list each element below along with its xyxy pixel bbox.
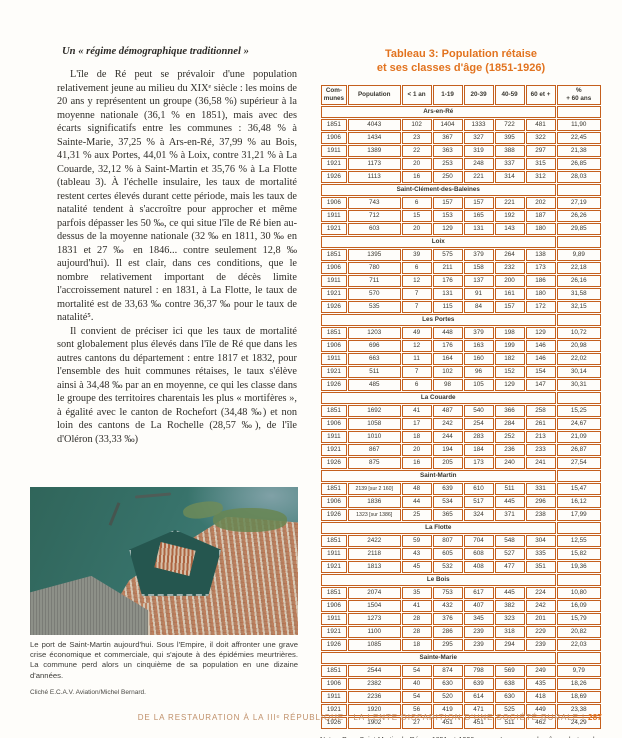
table-row: 191110101824428325221321,09 bbox=[321, 431, 601, 443]
population-table-header-row: Com- munesPopulation< 1 an1-1920-3940-59… bbox=[321, 85, 601, 105]
value-cell: 129 bbox=[433, 223, 463, 235]
year-cell: 1921 bbox=[321, 444, 347, 456]
value-cell: 753 bbox=[433, 587, 463, 599]
value-cell: 173 bbox=[526, 262, 556, 274]
value-cell: 221 bbox=[495, 197, 525, 209]
value-cell: 16 bbox=[402, 457, 432, 469]
table-row: 19218672019418423623326,87 bbox=[321, 444, 601, 456]
photo-breakwater bbox=[134, 493, 170, 499]
value-cell: 22,02 bbox=[557, 353, 602, 365]
value-cell: 363 bbox=[433, 145, 463, 157]
year-cell: 1921 bbox=[321, 158, 347, 170]
value-cell: 867 bbox=[348, 444, 401, 456]
value-cell: 315 bbox=[526, 158, 556, 170]
value-cell: 16,12 bbox=[557, 496, 602, 508]
value-cell: 176 bbox=[433, 275, 463, 287]
table-row: 18512139 [sur 2 160]4863961051133115,47 bbox=[321, 483, 601, 495]
table-row: 192611131625022131431228,03 bbox=[321, 171, 601, 183]
year-cell: 1926 bbox=[321, 171, 347, 183]
table-row: 191112732837634532320115,79 bbox=[321, 613, 601, 625]
value-cell: 2422 bbox=[348, 535, 401, 547]
value-cell: 28 bbox=[402, 626, 432, 638]
value-cell: 54 bbox=[402, 691, 432, 703]
value-cell: 41 bbox=[402, 405, 432, 417]
value-cell: 575 bbox=[433, 249, 463, 261]
table-row: 190610581724225428426124,67 bbox=[321, 418, 601, 430]
value-cell: 603 bbox=[348, 223, 401, 235]
left-text-column: Un « régime démographique traditionnel »… bbox=[57, 46, 297, 446]
photo-credit: Cliché E.C.A.V. Aviation/Michel Bernard. bbox=[30, 689, 298, 696]
value-cell: 4043 bbox=[348, 119, 401, 131]
value-cell: 202 bbox=[526, 197, 556, 209]
table-row: 1906780621115823217322,18 bbox=[321, 262, 601, 274]
commune-name: Saint-Clément-des-Baleines bbox=[321, 184, 556, 196]
empty-cell bbox=[557, 184, 602, 196]
value-cell: 1273 bbox=[348, 613, 401, 625]
year-cell: 1906 bbox=[321, 418, 347, 430]
table-row: 190618364453451744529616,12 bbox=[321, 496, 601, 508]
year-cell: 1911 bbox=[321, 275, 347, 287]
value-cell: 143 bbox=[495, 223, 525, 235]
value-cell: 304 bbox=[526, 535, 556, 547]
empty-cell bbox=[557, 236, 602, 248]
table-row: 192151171029615215430,14 bbox=[321, 366, 601, 378]
value-cell: 229 bbox=[526, 626, 556, 638]
value-cell: 638 bbox=[495, 678, 525, 690]
value-cell: 6 bbox=[402, 197, 432, 209]
value-cell: 129 bbox=[526, 327, 556, 339]
year-cell: 1921 bbox=[321, 561, 347, 573]
value-cell: 345 bbox=[464, 613, 494, 625]
value-cell: 249 bbox=[526, 665, 556, 677]
value-cell: 337 bbox=[495, 158, 525, 170]
value-cell: 798 bbox=[464, 665, 494, 677]
value-cell: 534 bbox=[433, 496, 463, 508]
value-cell: 137 bbox=[464, 275, 494, 287]
value-cell: 517 bbox=[464, 496, 494, 508]
value-cell: 147 bbox=[526, 379, 556, 391]
table-title-line1: Tableau 3: Population rétaise bbox=[385, 48, 537, 60]
value-cell: 131 bbox=[464, 223, 494, 235]
value-cell: 17,99 bbox=[557, 509, 602, 521]
value-cell: 221 bbox=[464, 171, 494, 183]
value-cell: 18 bbox=[402, 639, 432, 651]
value-cell: 2382 bbox=[348, 678, 401, 690]
value-cell: 28,03 bbox=[557, 171, 602, 183]
value-cell: 1333 bbox=[464, 119, 494, 131]
table-row: 191113892236331938829721,38 bbox=[321, 145, 601, 157]
body-paragraph-1: L'île de Ré peut se prévaloir d'une popu… bbox=[57, 68, 297, 325]
value-cell: 163 bbox=[464, 340, 494, 352]
value-cell: 639 bbox=[464, 678, 494, 690]
commune-section-row: Saint-Clément-des-Baleines bbox=[321, 184, 601, 196]
table-row: 185112034944837919812910,72 bbox=[321, 327, 601, 339]
value-cell: 91 bbox=[464, 288, 494, 300]
value-cell: 224 bbox=[526, 587, 556, 599]
value-cell: 296 bbox=[526, 496, 556, 508]
value-cell: 96 bbox=[464, 366, 494, 378]
page-footer: DE LA RESTAURATION À LA IIIᵉ RÉPUBLIQUE … bbox=[0, 713, 602, 722]
value-cell: 20 bbox=[402, 158, 432, 170]
value-cell: 511 bbox=[495, 483, 525, 495]
value-cell: 7 bbox=[402, 366, 432, 378]
value-cell: 780 bbox=[348, 262, 401, 274]
value-cell: 48 bbox=[402, 483, 432, 495]
value-cell: 39 bbox=[402, 249, 432, 261]
table-row: 192111002828623931822920,82 bbox=[321, 626, 601, 638]
value-cell: 261 bbox=[526, 418, 556, 430]
value-cell: 164 bbox=[433, 353, 463, 365]
value-cell: 15,47 bbox=[557, 483, 602, 495]
value-cell: 160 bbox=[464, 353, 494, 365]
table-row: 192118134553240847735119,36 bbox=[321, 561, 601, 573]
value-cell: 704 bbox=[464, 535, 494, 547]
year-cell: 1911 bbox=[321, 210, 347, 222]
value-cell: 481 bbox=[526, 119, 556, 131]
value-cell: 485 bbox=[348, 379, 401, 391]
value-cell: 630 bbox=[433, 678, 463, 690]
value-cell: 376 bbox=[433, 613, 463, 625]
value-cell: 59 bbox=[402, 535, 432, 547]
value-cell: 232 bbox=[495, 262, 525, 274]
value-cell: 570 bbox=[348, 288, 401, 300]
empty-cell bbox=[557, 392, 602, 404]
value-cell: 294 bbox=[495, 639, 525, 651]
section-heading: Un « régime démographique traditionnel » bbox=[62, 46, 297, 57]
value-cell: 152 bbox=[495, 366, 525, 378]
value-cell: 35 bbox=[402, 587, 432, 599]
year-cell: 1906 bbox=[321, 132, 347, 144]
table-row: 19117121515316519218726,26 bbox=[321, 210, 601, 222]
value-cell: 32,15 bbox=[557, 301, 602, 313]
value-cell: 569 bbox=[495, 665, 525, 677]
year-cell: 1851 bbox=[321, 665, 347, 677]
value-cell: 105 bbox=[464, 379, 494, 391]
commune-section-row: Ars-en-Ré bbox=[321, 106, 601, 118]
value-cell: 1836 bbox=[348, 496, 401, 508]
value-cell: 1323 [sur 1386] bbox=[348, 509, 401, 521]
photo-jetty bbox=[109, 502, 121, 525]
value-cell: 548 bbox=[495, 535, 525, 547]
value-cell: 382 bbox=[495, 600, 525, 612]
value-cell: 366 bbox=[495, 405, 525, 417]
value-cell: 205 bbox=[433, 457, 463, 469]
value-cell: 407 bbox=[464, 600, 494, 612]
value-cell: 43 bbox=[402, 548, 432, 560]
value-cell: 131 bbox=[433, 288, 463, 300]
value-cell: 477 bbox=[495, 561, 525, 573]
value-cell: 331 bbox=[526, 483, 556, 495]
value-cell: 154 bbox=[526, 366, 556, 378]
commune-section-row: La Flotte bbox=[321, 522, 601, 534]
value-cell: 27,54 bbox=[557, 457, 602, 469]
value-cell: 1085 bbox=[348, 639, 401, 651]
table-title: Tableau 3: Population rétaise et ses cla… bbox=[320, 48, 602, 75]
value-cell: 236 bbox=[495, 444, 525, 456]
value-cell: 418 bbox=[526, 691, 556, 703]
value-cell: 617 bbox=[464, 587, 494, 599]
year-cell: 1851 bbox=[321, 119, 347, 131]
empty-cell bbox=[557, 522, 602, 534]
value-cell: 28 bbox=[402, 613, 432, 625]
value-cell: 318 bbox=[495, 626, 525, 638]
table-row: 185140431021404133372248111,90 bbox=[321, 119, 601, 131]
footer-text: DE LA RESTAURATION À LA IIIᵉ RÉPUBLIQUE … bbox=[138, 713, 585, 722]
table-row: 190614342336732739532222,45 bbox=[321, 132, 601, 144]
table-row: 19066961217616319914620,98 bbox=[321, 340, 601, 352]
value-cell: 9,89 bbox=[557, 249, 602, 261]
right-table-column: Tableau 3: Population rétaise et ses cla… bbox=[320, 48, 602, 738]
value-cell: 165 bbox=[464, 210, 494, 222]
year-cell: 1911 bbox=[321, 691, 347, 703]
year-cell: 1906 bbox=[321, 197, 347, 209]
value-cell: 487 bbox=[433, 405, 463, 417]
year-cell: 1926 bbox=[321, 379, 347, 391]
value-cell: 198 bbox=[495, 327, 525, 339]
value-cell: 2236 bbox=[348, 691, 401, 703]
value-cell: 98 bbox=[433, 379, 463, 391]
value-cell: 12,55 bbox=[557, 535, 602, 547]
value-cell: 20 bbox=[402, 444, 432, 456]
value-cell: 312 bbox=[526, 171, 556, 183]
year-cell: 1911 bbox=[321, 548, 347, 560]
value-cell: 254 bbox=[464, 418, 494, 430]
year-cell: 1906 bbox=[321, 678, 347, 690]
value-cell: 29,85 bbox=[557, 223, 602, 235]
book-page: Un « régime démographique traditionnel »… bbox=[0, 0, 622, 738]
value-cell: 26,16 bbox=[557, 275, 602, 287]
value-cell: 258 bbox=[526, 405, 556, 417]
value-cell: 432 bbox=[433, 600, 463, 612]
value-cell: 16,09 bbox=[557, 600, 602, 612]
value-cell: 186 bbox=[526, 275, 556, 287]
page-number: 287 bbox=[588, 713, 602, 722]
value-cell: 161 bbox=[495, 288, 525, 300]
year-cell: 1851 bbox=[321, 587, 347, 599]
value-cell: 408 bbox=[464, 561, 494, 573]
column-header: Population bbox=[348, 85, 401, 105]
value-cell: 319 bbox=[464, 145, 494, 157]
table-row: 19117111217613720018626,16 bbox=[321, 275, 601, 287]
value-cell: 30,31 bbox=[557, 379, 602, 391]
value-cell: 213 bbox=[526, 431, 556, 443]
value-cell: 1389 bbox=[348, 145, 401, 157]
year-cell: 1921 bbox=[321, 223, 347, 235]
value-cell: 608 bbox=[464, 548, 494, 560]
value-cell: 1395 bbox=[348, 249, 401, 261]
value-cell: 743 bbox=[348, 197, 401, 209]
column-header: 60 et + bbox=[526, 85, 556, 105]
value-cell: 7 bbox=[402, 288, 432, 300]
value-cell: 448 bbox=[433, 327, 463, 339]
value-cell: 146 bbox=[526, 340, 556, 352]
value-cell: 20,98 bbox=[557, 340, 602, 352]
value-cell: 283 bbox=[464, 431, 494, 443]
column-header: 1-19 bbox=[433, 85, 463, 105]
value-cell: 172 bbox=[526, 301, 556, 313]
table-row: 190623824063063963843518,26 bbox=[321, 678, 601, 690]
value-cell: 15,25 bbox=[557, 405, 602, 417]
empty-cell bbox=[557, 652, 602, 664]
value-cell: 253 bbox=[433, 158, 463, 170]
value-cell: 875 bbox=[348, 457, 401, 469]
value-cell: 192 bbox=[495, 210, 525, 222]
value-cell: 54 bbox=[402, 665, 432, 677]
value-cell: 2139 [sur 2 160] bbox=[348, 483, 401, 495]
year-cell: 1851 bbox=[321, 249, 347, 261]
empty-cell bbox=[557, 314, 602, 326]
value-cell: 388 bbox=[495, 145, 525, 157]
value-cell: 605 bbox=[433, 548, 463, 560]
value-cell: 239 bbox=[464, 626, 494, 638]
value-cell: 129 bbox=[495, 379, 525, 391]
value-cell: 1100 bbox=[348, 626, 401, 638]
year-cell: 1911 bbox=[321, 145, 347, 157]
table-row: 18512544548747985692499,79 bbox=[321, 665, 601, 677]
value-cell: 23 bbox=[402, 132, 432, 144]
value-cell: 250 bbox=[433, 171, 463, 183]
table-row: 185120743575361744522410,80 bbox=[321, 587, 601, 599]
column-header: 40-59 bbox=[495, 85, 525, 105]
value-cell: 722 bbox=[495, 119, 525, 131]
empty-cell bbox=[557, 106, 602, 118]
value-cell: 630 bbox=[495, 691, 525, 703]
value-cell: 15,82 bbox=[557, 548, 602, 560]
value-cell: 1404 bbox=[433, 119, 463, 131]
commune-name: Sainte-Marie bbox=[321, 652, 556, 664]
year-cell: 1851 bbox=[321, 535, 347, 547]
value-cell: 242 bbox=[526, 600, 556, 612]
value-cell: 9,79 bbox=[557, 665, 602, 677]
value-cell: 711 bbox=[348, 275, 401, 287]
value-cell: 1010 bbox=[348, 431, 401, 443]
empty-cell bbox=[557, 470, 602, 482]
value-cell: 30,14 bbox=[557, 366, 602, 378]
value-cell: 295 bbox=[433, 639, 463, 651]
photo-caption: Le port de Saint-Martin aujourd'hui. Sou… bbox=[30, 640, 298, 681]
value-cell: 173 bbox=[464, 457, 494, 469]
column-header: 20-39 bbox=[464, 85, 494, 105]
value-cell: 44 bbox=[402, 496, 432, 508]
value-cell: 41 bbox=[402, 600, 432, 612]
value-cell: 158 bbox=[464, 262, 494, 274]
table-row: 190615044143240738224216,09 bbox=[321, 600, 601, 612]
value-cell: 712 bbox=[348, 210, 401, 222]
value-cell: 157 bbox=[433, 197, 463, 209]
year-cell: 1851 bbox=[321, 327, 347, 339]
year-cell: 1906 bbox=[321, 600, 347, 612]
value-cell: 323 bbox=[495, 613, 525, 625]
value-cell: 15 bbox=[402, 210, 432, 222]
value-cell: 49 bbox=[402, 327, 432, 339]
value-cell: 20,82 bbox=[557, 626, 602, 638]
value-cell: 511 bbox=[348, 366, 401, 378]
value-cell: 286 bbox=[433, 626, 463, 638]
value-cell: 244 bbox=[433, 431, 463, 443]
value-cell: 327 bbox=[464, 132, 494, 144]
table-row: 185116924148754036625815,25 bbox=[321, 405, 601, 417]
value-cell: 211 bbox=[433, 262, 463, 274]
table-row: 19116631116416018214622,02 bbox=[321, 353, 601, 365]
commune-name: Les Portes bbox=[321, 314, 556, 326]
value-cell: 153 bbox=[433, 210, 463, 222]
value-cell: 696 bbox=[348, 340, 401, 352]
value-cell: 25 bbox=[402, 509, 432, 521]
value-cell: 252 bbox=[495, 431, 525, 443]
commune-name: La Couarde bbox=[321, 392, 556, 404]
table-row: 18511395395753792641389,89 bbox=[321, 249, 601, 261]
value-cell: 180 bbox=[526, 223, 556, 235]
value-cell: 12 bbox=[402, 340, 432, 352]
population-table-body: Ars-en-Ré185140431021404133372248111,901… bbox=[321, 106, 601, 729]
year-cell: 1911 bbox=[321, 353, 347, 365]
value-cell: 115 bbox=[433, 301, 463, 313]
year-cell: 1906 bbox=[321, 262, 347, 274]
value-cell: 15,79 bbox=[557, 613, 602, 625]
value-cell: 807 bbox=[433, 535, 463, 547]
value-cell: 639 bbox=[433, 483, 463, 495]
value-cell: 40 bbox=[402, 678, 432, 690]
table-row: 192111732025324833731526,85 bbox=[321, 158, 601, 170]
value-cell: 2074 bbox=[348, 587, 401, 599]
value-cell: 532 bbox=[433, 561, 463, 573]
value-cell: 102 bbox=[433, 366, 463, 378]
value-cell: 351 bbox=[526, 561, 556, 573]
value-cell: 520 bbox=[433, 691, 463, 703]
value-cell: 365 bbox=[433, 509, 463, 521]
commune-section-row: Saint-Martin bbox=[321, 470, 601, 482]
value-cell: 1434 bbox=[348, 132, 401, 144]
value-cell: 22,45 bbox=[557, 132, 602, 144]
value-cell: 157 bbox=[495, 301, 525, 313]
value-cell: 241 bbox=[526, 457, 556, 469]
population-table: Com- munesPopulation< 1 an1-1920-3940-59… bbox=[320, 84, 602, 730]
photo-block: Le port de Saint-Martin aujourd'hui. Sou… bbox=[30, 487, 298, 702]
table-title-line2: et ses classes d'âge (1851-1926) bbox=[377, 62, 545, 74]
value-cell: 138 bbox=[526, 249, 556, 261]
table-row: 19261323 [sur 1386]2536532437123817,99 bbox=[321, 509, 601, 521]
commune-name: Ars-en-Ré bbox=[321, 106, 556, 118]
value-cell: 367 bbox=[433, 132, 463, 144]
value-cell: 527 bbox=[495, 548, 525, 560]
commune-section-row: Sainte-Marie bbox=[321, 652, 601, 664]
year-cell: 1926 bbox=[321, 457, 347, 469]
year-cell: 1906 bbox=[321, 496, 347, 508]
value-cell: 26,85 bbox=[557, 158, 602, 170]
value-cell: 1692 bbox=[348, 405, 401, 417]
year-cell: 1926 bbox=[321, 639, 347, 651]
year-cell: 1851 bbox=[321, 483, 347, 495]
value-cell: 21,09 bbox=[557, 431, 602, 443]
column-header: < 1 an bbox=[402, 85, 432, 105]
value-cell: 284 bbox=[495, 418, 525, 430]
value-cell: 239 bbox=[526, 639, 556, 651]
table-row: 192648569810512914730,31 bbox=[321, 379, 601, 391]
value-cell: 20 bbox=[402, 223, 432, 235]
value-cell: 10,80 bbox=[557, 587, 602, 599]
value-cell: 22 bbox=[402, 145, 432, 157]
value-cell: 176 bbox=[433, 340, 463, 352]
photo-citadel-island bbox=[155, 542, 196, 576]
value-cell: 614 bbox=[464, 691, 494, 703]
value-cell: 264 bbox=[495, 249, 525, 261]
column-header: Com- munes bbox=[321, 85, 347, 105]
value-cell: 18,69 bbox=[557, 691, 602, 703]
value-cell: 379 bbox=[464, 327, 494, 339]
body-paragraph-2: Il convient de préciser ici que les taux… bbox=[57, 325, 297, 447]
value-cell: 10,72 bbox=[557, 327, 602, 339]
value-cell: 322 bbox=[526, 132, 556, 144]
